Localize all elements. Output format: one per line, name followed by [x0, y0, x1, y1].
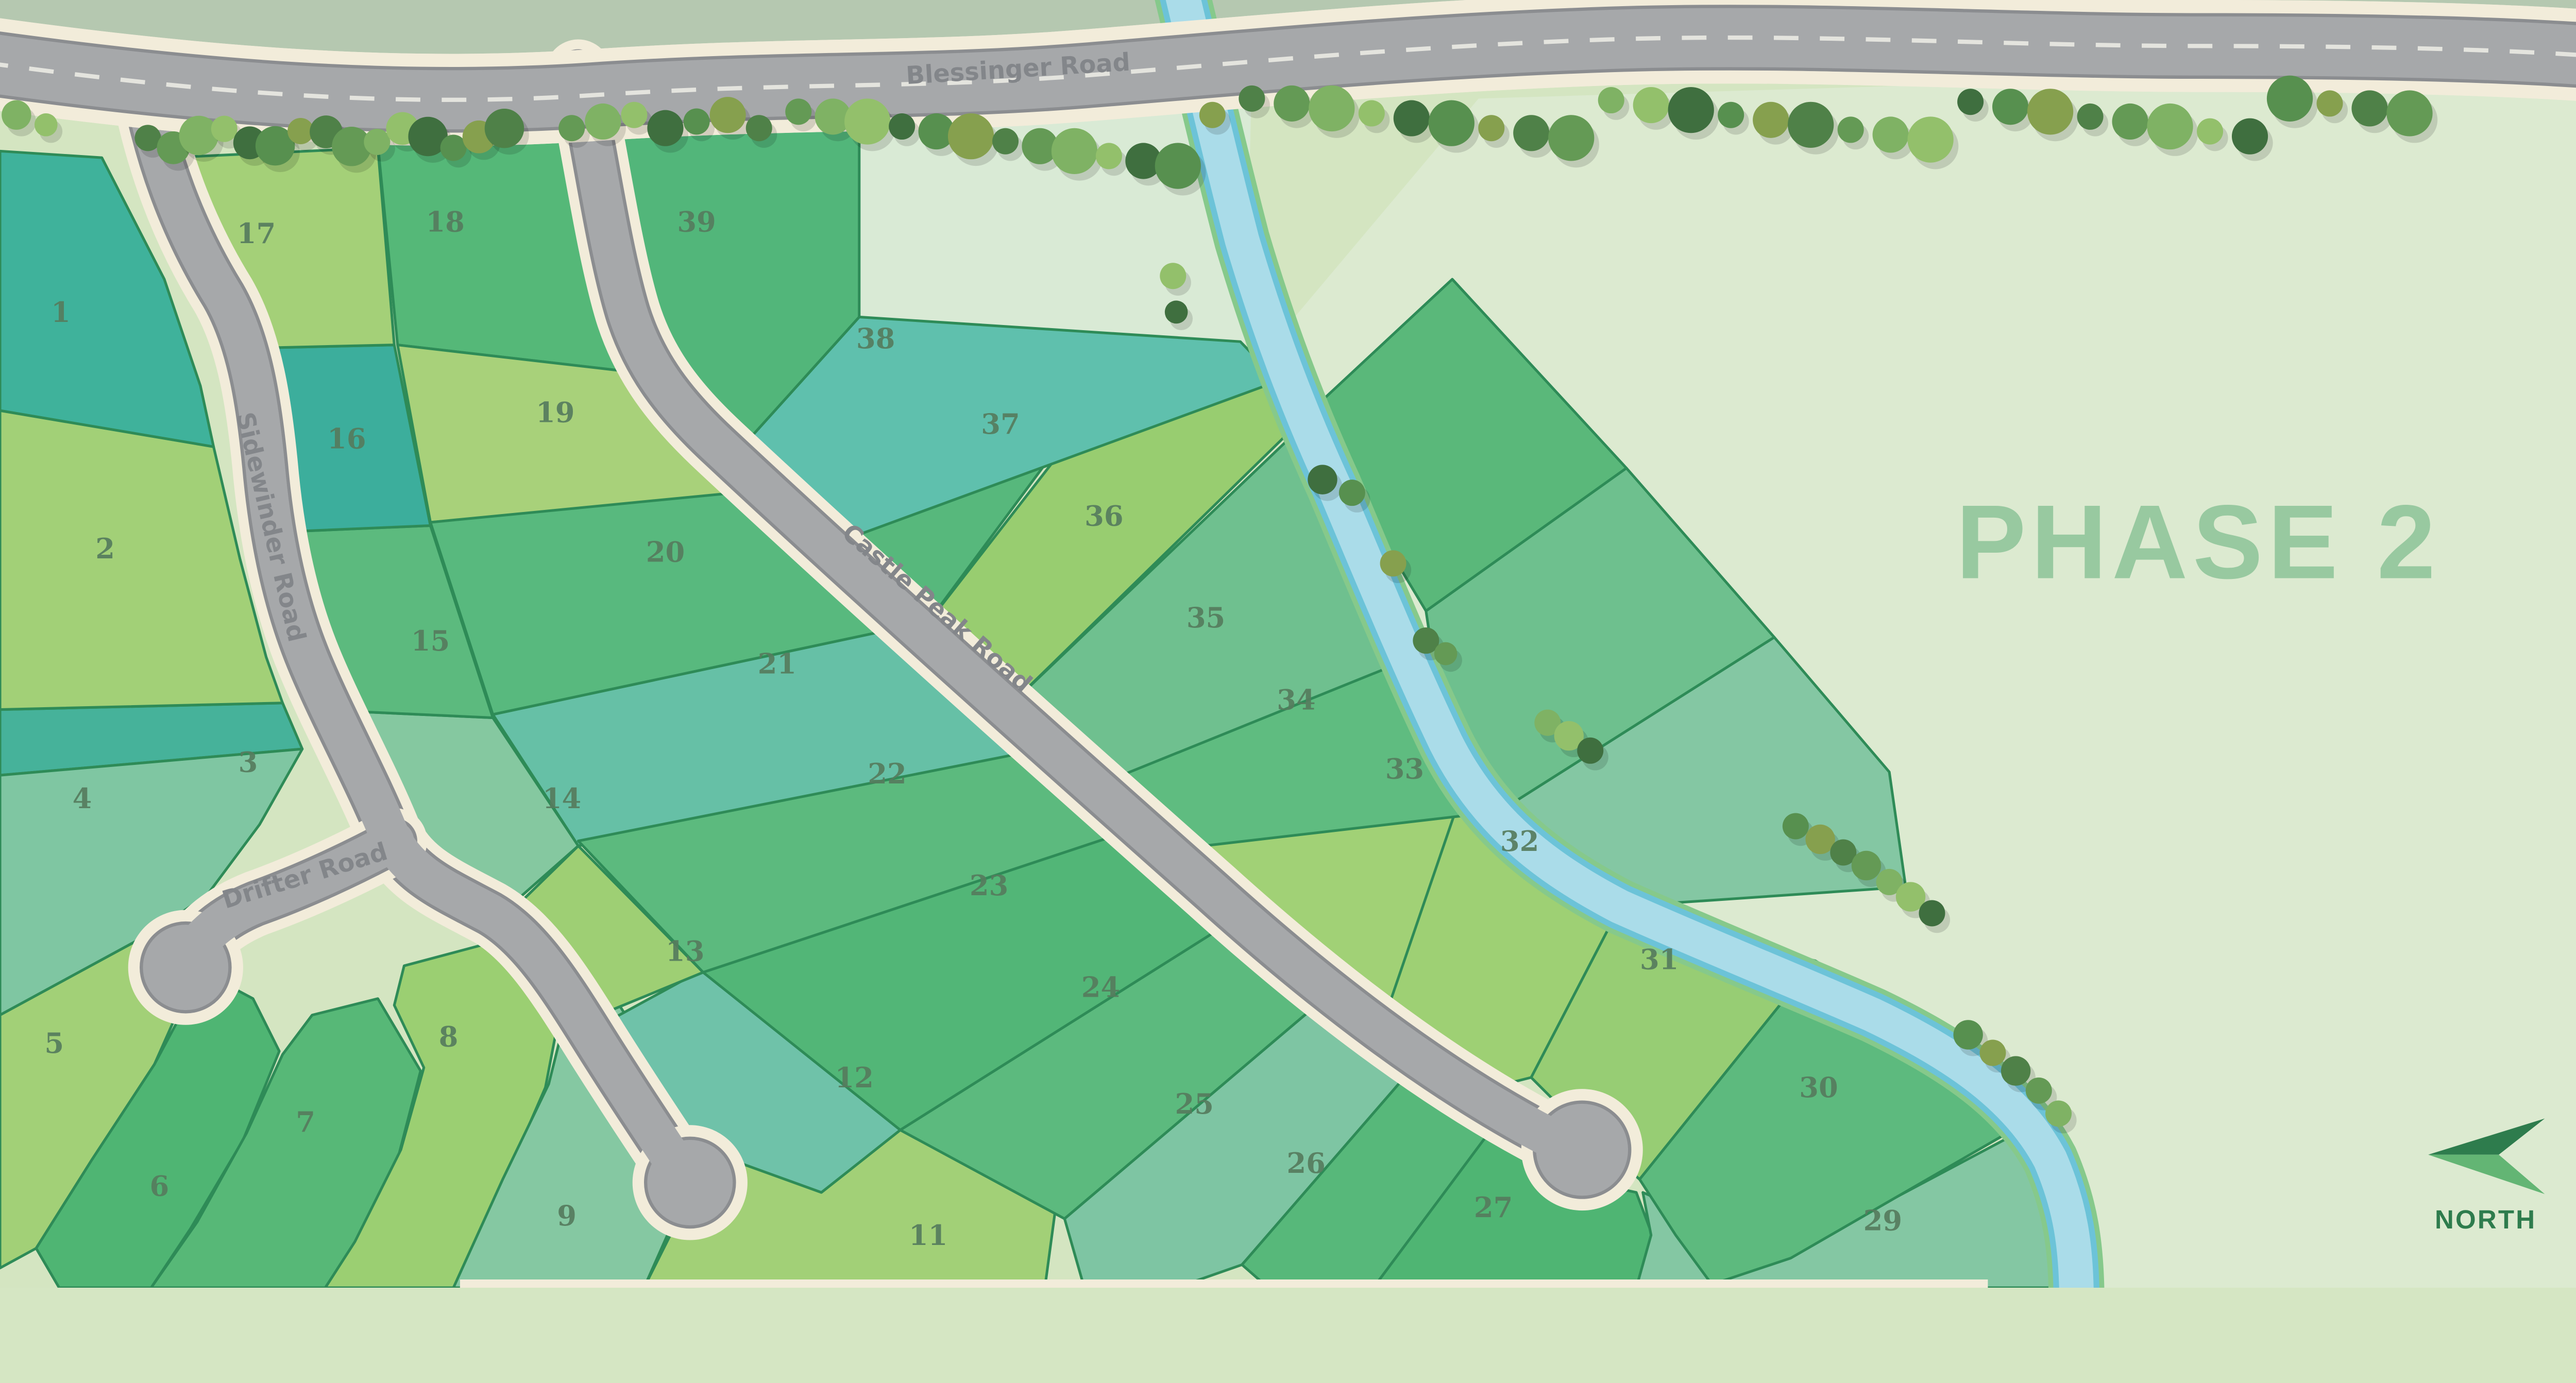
tree-icon [1598, 87, 1624, 113]
tree-icon [1783, 813, 1809, 839]
tree-icon [1548, 115, 1594, 161]
lot-number-23: 23 [970, 869, 1008, 902]
lot-number-6: 6 [149, 1169, 169, 1202]
tree-icon [2027, 89, 2073, 134]
lot-number-20: 20 [646, 536, 685, 569]
tree-icon [1429, 100, 1475, 146]
tree-icon [179, 116, 219, 156]
tree-icon [585, 104, 621, 140]
lot-number-38: 38 [856, 322, 895, 355]
tree-icon [1979, 1039, 2006, 1066]
lot-number-2: 2 [95, 532, 115, 565]
tree-icon [621, 102, 647, 128]
tree-icon [1199, 102, 1226, 128]
tree-icon [1239, 86, 1265, 112]
lot-number-9: 9 [557, 1199, 577, 1232]
tree-icon [746, 115, 772, 141]
tree-icon [2001, 1056, 2030, 1085]
tree-icon [1052, 128, 1097, 174]
tree-icon [1838, 116, 1864, 143]
tree-icon [710, 97, 746, 133]
lot-number-33: 33 [1385, 752, 1424, 785]
tree-icon [558, 115, 585, 141]
tree-icon [1919, 900, 1945, 926]
lot-number-32: 32 [1500, 825, 1539, 858]
lot-number-39: 39 [677, 206, 716, 238]
lot-number-26: 26 [1286, 1147, 1325, 1180]
tree-icon [2045, 1100, 2072, 1126]
lot-number-30: 30 [1799, 1071, 1838, 1104]
tree-icon [1339, 480, 1365, 506]
tree-icon [1577, 738, 1603, 764]
tree-icon [1788, 102, 1834, 148]
site-plan-map: 1234567891112131415161718192021222324252… [0, 0, 2576, 1288]
tree-icon [1633, 87, 1669, 123]
phase-title: PHASE 2 [1956, 483, 2440, 601]
tree-icon [1359, 100, 1385, 127]
lot-number-8: 8 [439, 1020, 459, 1053]
lot-number-3: 3 [239, 746, 258, 779]
tree-icon [1434, 642, 1458, 665]
tree-icon [1953, 1020, 1982, 1049]
tree-icon [1478, 115, 1504, 141]
lot-number-13: 13 [666, 934, 704, 967]
tree-icon [2316, 90, 2343, 116]
lot-number-34: 34 [1277, 684, 1315, 716]
bottom-edge-strip [460, 1279, 1988, 1288]
tree-icon [2386, 90, 2432, 136]
tree-icon [1957, 89, 1984, 115]
tree-icon [1394, 100, 1430, 136]
lot-number-31: 31 [1640, 943, 1679, 976]
tree-icon [1873, 116, 1909, 152]
lot-number-15: 15 [411, 624, 450, 657]
tree-icon [2, 100, 31, 130]
tree-icon [2197, 118, 2223, 145]
tree-icon [2232, 118, 2268, 155]
tree-icon [1165, 301, 1188, 324]
tree-icon [1096, 143, 1122, 169]
lot-number-22: 22 [868, 757, 906, 790]
tree-icon [1380, 550, 1406, 576]
tree-icon [485, 109, 524, 148]
plat-map-canvas: 1234567891112131415161718192021222324252… [0, 0, 2576, 1288]
lot-number-24: 24 [1081, 971, 1120, 1004]
tree-icon [1160, 263, 1186, 289]
lot-number-11: 11 [909, 1219, 947, 1252]
lot-number-29: 29 [1863, 1204, 1902, 1237]
tree-icon [2267, 76, 2313, 122]
lot-number-21: 21 [758, 647, 796, 680]
tree-icon [948, 113, 994, 159]
tree-icon [1513, 115, 1549, 151]
lot-number-7: 7 [296, 1105, 315, 1138]
tree-icon [2112, 104, 2148, 140]
tree-icon [1308, 465, 1337, 494]
tree-icon [211, 116, 238, 142]
tree-icon [2077, 104, 2104, 130]
tree-icon [1992, 89, 2028, 125]
tree-icon [1155, 143, 1201, 189]
tree-icon [1753, 102, 1789, 138]
lot-number-1: 1 [51, 296, 71, 329]
tree-icon [2351, 90, 2387, 126]
tree-icon [647, 110, 683, 146]
tree-icon [364, 129, 390, 155]
tree-icon [684, 108, 710, 134]
lot-number-36: 36 [1084, 499, 1123, 532]
lot-number-19: 19 [536, 396, 574, 429]
tree-icon [1668, 87, 1714, 133]
tree-icon [1274, 86, 1310, 122]
tree-icon [1309, 86, 1354, 131]
tree-icon [2147, 104, 2193, 149]
lot-number-25: 25 [1175, 1087, 1214, 1120]
tree-icon [35, 113, 58, 136]
lot-number-18: 18 [426, 206, 464, 238]
tree-icon [889, 113, 915, 140]
tree-icon [992, 128, 1019, 155]
tree-icon [844, 98, 890, 144]
lot-number-27: 27 [1474, 1191, 1513, 1224]
lot-number-14: 14 [543, 782, 581, 815]
tree-icon [1907, 116, 1953, 162]
lot-number-12: 12 [835, 1061, 873, 1094]
lot-number-5: 5 [44, 1027, 64, 1060]
lot-number-37: 37 [981, 407, 1020, 440]
north-label: NORTH [2435, 1205, 2536, 1234]
tree-icon [1718, 102, 1744, 128]
lot-number-35: 35 [1187, 601, 1225, 634]
lot-number-16: 16 [327, 422, 366, 455]
lot-number-17: 17 [237, 217, 276, 250]
tree-icon [785, 98, 811, 125]
tree-icon [1852, 851, 1881, 880]
tree-icon [2026, 1078, 2052, 1104]
lot-number-4: 4 [73, 782, 92, 815]
